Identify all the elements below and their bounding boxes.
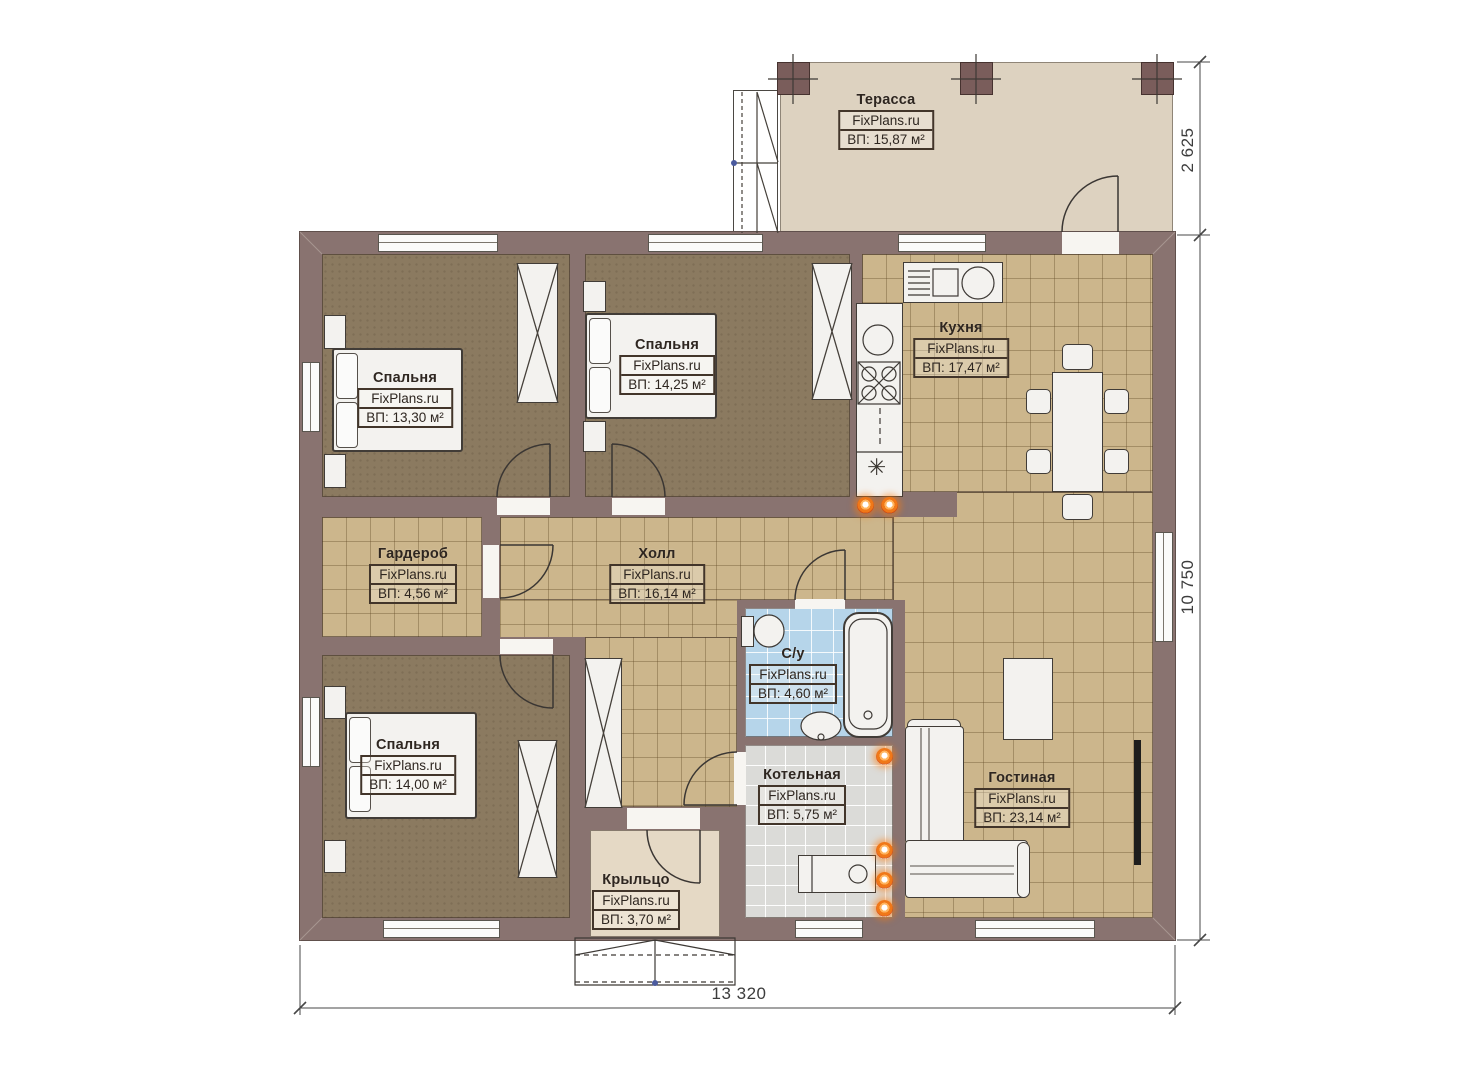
window [378, 234, 498, 252]
room-label-hall: Холл FixPlans.ru ВП: 16,14 м² [609, 546, 705, 604]
sofa-armrest [1017, 842, 1030, 898]
chair [1104, 389, 1129, 414]
room-area: ВП: 4,56 м² [371, 585, 455, 602]
room-area: ВП: 5,75 м² [760, 806, 844, 823]
watermark-box: FixPlans.ru ВП: 23,14 м² [974, 788, 1070, 828]
toilet [741, 616, 754, 647]
nightstand [324, 840, 346, 873]
radiator-icon [881, 497, 898, 514]
door-opening [627, 808, 700, 829]
radiator-icon [876, 900, 893, 917]
window [898, 234, 986, 252]
watermark-text: FixPlans.ru [359, 390, 451, 409]
room-area: ВП: 16,14 м² [611, 585, 703, 602]
porch-steps [575, 938, 735, 986]
terrace-column [1141, 62, 1174, 95]
chair [1062, 494, 1093, 520]
window [302, 362, 320, 432]
door-opening [483, 545, 499, 598]
room-label-terrace: Терасса FixPlans.ru ВП: 15,87 м² [838, 92, 934, 150]
room-area: ВП: 13,30 м² [359, 409, 451, 426]
room-area: ВП: 23,14 м² [976, 809, 1068, 826]
watermark-text: FixPlans.ru [751, 666, 835, 685]
floor-plan: ✳ [0, 0, 1473, 1080]
console-table [1003, 658, 1053, 740]
room-name: Спальня [360, 737, 456, 753]
door-opening [612, 498, 665, 515]
window [1155, 532, 1173, 642]
chair [1026, 389, 1051, 414]
window [383, 920, 500, 938]
nightstand [583, 281, 606, 312]
wardrobe-cabinet [585, 658, 622, 808]
nightstand [324, 686, 346, 719]
kitchen-counter [903, 262, 1003, 303]
room-label-boiler: Котельная FixPlans.ru ВП: 5,75 м² [758, 767, 846, 825]
window [795, 920, 863, 938]
window [975, 920, 1095, 938]
room-area: ВП: 15,87 м² [840, 131, 932, 148]
radiator-icon [876, 842, 893, 859]
wardrobe-cabinet [812, 263, 852, 400]
room-area: ВП: 17,47 м² [915, 359, 1007, 376]
door-opening [795, 599, 845, 609]
watermark-text: FixPlans.ru [840, 112, 932, 131]
tv [1134, 740, 1141, 865]
chair [1104, 449, 1129, 474]
watermark-text: FixPlans.ru [611, 566, 703, 585]
boiler-unit [798, 855, 876, 893]
room-label-bedroom3: Спальня FixPlans.ru ВП: 14,00 м² [360, 737, 456, 795]
room-area: ВП: 4,60 м² [751, 685, 835, 702]
radiator-icon [876, 872, 893, 889]
wardrobe-cabinet [517, 263, 558, 403]
room-label-living: Гостиная FixPlans.ru ВП: 23,14 м² [974, 770, 1070, 828]
room-label-kitchen: Кухня FixPlans.ru ВП: 17,47 м² [913, 320, 1009, 378]
room-name: Котельная [758, 767, 846, 783]
room-label-porch: Крыльцо FixPlans.ru ВП: 3,70 м² [592, 872, 680, 930]
room-name: Гардероб [369, 546, 457, 562]
sofa [905, 840, 1028, 898]
terrace-column [777, 62, 810, 95]
door-opening [1062, 232, 1119, 254]
room-name: Гостиная [974, 770, 1070, 786]
room-name: Кухня [913, 320, 1009, 336]
watermark-text: FixPlans.ru [915, 340, 1007, 359]
watermark-box: FixPlans.ru ВП: 16,14 м² [609, 564, 705, 604]
nightstand [324, 315, 346, 349]
chair [1062, 344, 1093, 370]
dimension-terrace-depth: 2 625 [1178, 110, 1198, 190]
radiator-icon [857, 497, 874, 514]
watermark-text: FixPlans.ru [621, 357, 713, 376]
pillow [336, 402, 358, 448]
room-label-wardrobe: Гардероб FixPlans.ru ВП: 4,56 м² [369, 546, 457, 604]
nightstand [324, 454, 346, 488]
room-name: Крыльцо [592, 872, 680, 888]
watermark-box: FixPlans.ru ВП: 3,70 м² [592, 890, 680, 930]
dimension-house-depth: 10 750 [1178, 547, 1198, 627]
room-name: Холл [609, 546, 705, 562]
watermark-box: FixPlans.ru ВП: 13,30 м² [357, 388, 453, 428]
window [302, 697, 320, 767]
watermark-text: FixPlans.ru [371, 566, 455, 585]
dining-table [1052, 372, 1103, 492]
room-name: Спальня [357, 370, 453, 386]
room-area: ВП: 14,25 м² [621, 376, 713, 393]
pillow [589, 318, 611, 364]
watermark-text: FixPlans.ru [976, 790, 1068, 809]
nightstand [583, 421, 606, 452]
watermark-text: FixPlans.ru [760, 787, 844, 806]
watermark-text: FixPlans.ru [594, 892, 678, 911]
room-area: ВП: 14,00 м² [362, 776, 454, 793]
room-name: С/у [749, 646, 837, 662]
pillow [336, 353, 358, 399]
window [648, 234, 763, 252]
watermark-box: FixPlans.ru ВП: 17,47 м² [913, 338, 1009, 378]
room-name: Терасса [838, 92, 934, 108]
sofa [905, 726, 964, 844]
bathtub [843, 612, 893, 738]
chair [1026, 449, 1051, 474]
room-label-bedroom1: Спальня FixPlans.ru ВП: 13,30 м² [357, 370, 453, 428]
watermark-box: FixPlans.ru ВП: 15,87 м² [838, 110, 934, 150]
watermark-text: FixPlans.ru [362, 757, 454, 776]
watermark-box: FixPlans.ru ВП: 14,25 м² [619, 355, 715, 395]
room-area: ВП: 3,70 м² [594, 911, 678, 928]
door-opening [734, 752, 746, 805]
dimension-house-width: 13 320 [689, 984, 789, 1004]
snowflake-icon: ✳ [867, 456, 886, 479]
hall-floor [500, 600, 737, 637]
bathroom-living-wall [893, 600, 905, 918]
pillow [589, 367, 611, 413]
radiator-icon [876, 748, 893, 765]
wardrobe-cabinet [518, 740, 557, 878]
watermark-box: FixPlans.ru ВП: 14,00 м² [360, 755, 456, 795]
room-label-bathroom: С/у FixPlans.ru ВП: 4,60 м² [749, 646, 837, 704]
door-opening [500, 639, 553, 654]
room-name: Спальня [619, 337, 715, 353]
room-label-bedroom2: Спальня FixPlans.ru ВП: 14,25 м² [619, 337, 715, 395]
watermark-box: FixPlans.ru ВП: 5,75 м² [758, 785, 846, 825]
door-opening [497, 498, 550, 515]
watermark-box: FixPlans.ru ВП: 4,60 м² [749, 664, 837, 704]
terrace-stairs [733, 90, 778, 233]
terrace-column [960, 62, 993, 95]
watermark-box: FixPlans.ru ВП: 4,56 м² [369, 564, 457, 604]
